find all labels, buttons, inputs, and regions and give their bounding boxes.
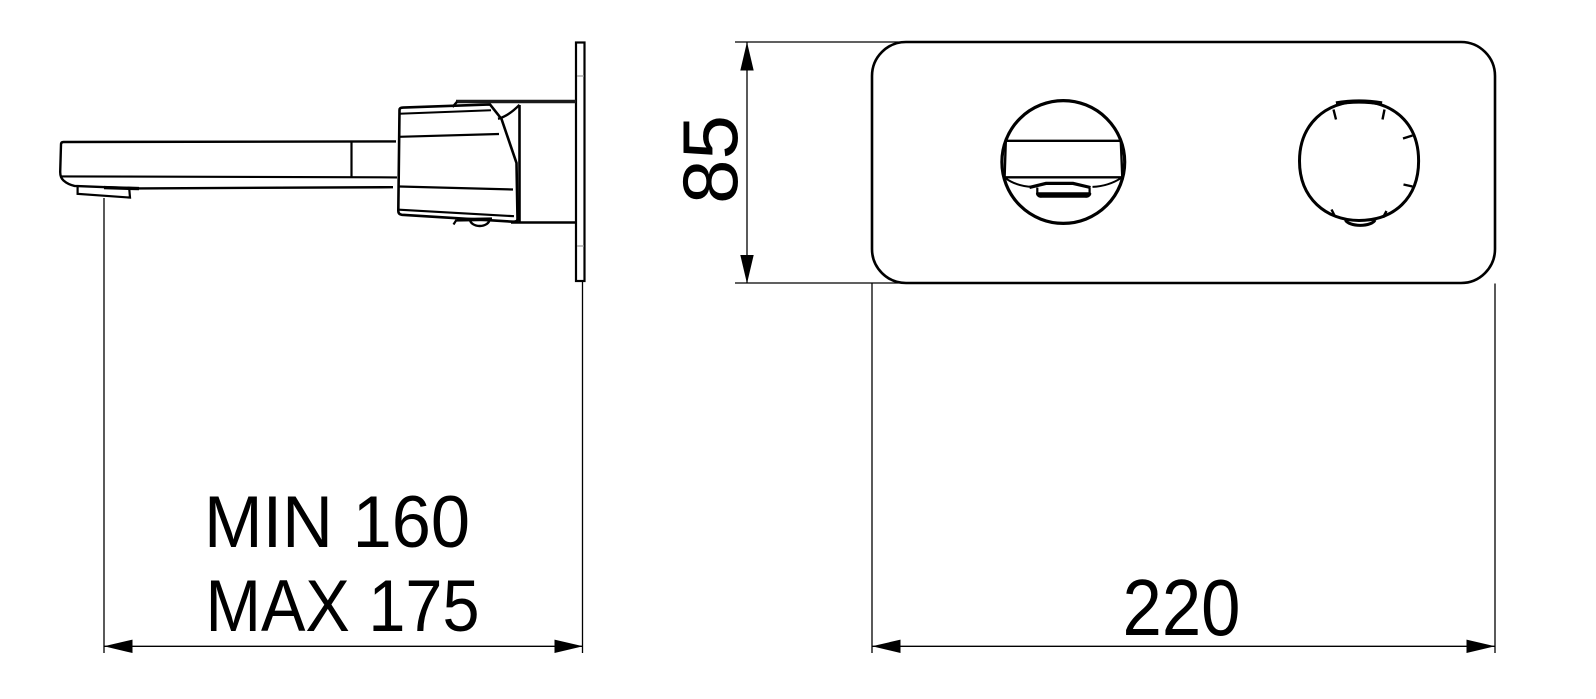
svg-text:MIN 160: MIN 160 [204,482,470,563]
svg-text:MAX 175: MAX 175 [206,566,480,647]
svg-text:220: 220 [1123,563,1241,652]
svg-text:85: 85 [666,115,754,204]
